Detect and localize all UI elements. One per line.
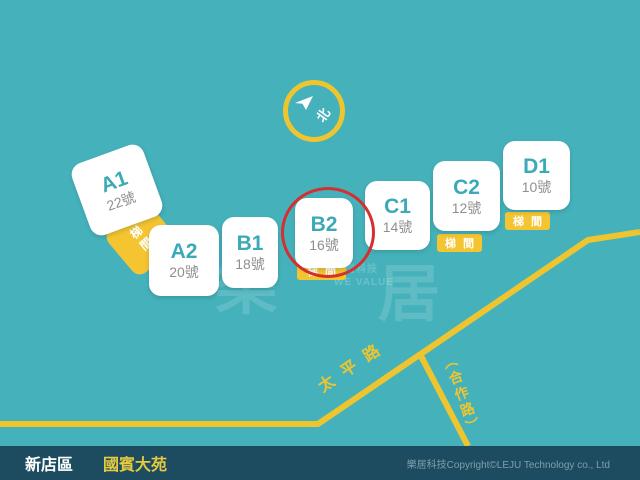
building-name: A2 xyxy=(171,240,198,263)
building-name: D1 xyxy=(523,155,550,178)
north-arrow-icon xyxy=(295,96,315,112)
building-number: 16號 xyxy=(309,236,339,254)
building-number: 20號 xyxy=(169,263,199,281)
site-map-screen: 太平路 （合作路） 樂 居 樂居科技 WE VALUE 北 梯間 梯間 梯間 梯… xyxy=(0,0,640,480)
building-block-c1[interactable]: C1 14號 xyxy=(365,181,430,250)
building-name: C2 xyxy=(453,176,480,199)
community-map: 太平路 （合作路） 樂 居 樂居科技 WE VALUE 北 梯間 梯間 梯間 梯… xyxy=(0,0,640,446)
stair-label-c2: 梯間 xyxy=(437,234,482,252)
stair-label-d1: 梯間 xyxy=(505,212,550,230)
building-block-a2[interactable]: A2 20號 xyxy=(149,225,219,296)
building-block-b1[interactable]: B1 18號 xyxy=(222,217,278,288)
building-block-b2[interactable]: B2 16號 xyxy=(295,198,353,268)
compass: 北 xyxy=(283,80,345,142)
footer-bar: 新店區 國賓大苑 樂居科技Copyright©LEJU Technology c… xyxy=(0,446,640,480)
building-block-d1[interactable]: D1 10號 xyxy=(503,141,570,210)
building-name: B2 xyxy=(311,213,338,236)
building-number: 18號 xyxy=(235,255,265,273)
community-name-label: 國賓大苑 xyxy=(103,451,167,475)
copyright-text: 樂居科技Copyright©LEJU Technology co., Ltd xyxy=(407,456,610,471)
building-number: 14號 xyxy=(383,218,413,236)
district-label: 新店區 xyxy=(25,451,73,475)
building-name: C1 xyxy=(384,195,411,218)
building-number: 10號 xyxy=(522,178,552,196)
building-number: 12號 xyxy=(452,199,482,217)
building-block-c2[interactable]: C2 12號 xyxy=(433,161,500,231)
building-name: B1 xyxy=(237,232,264,255)
